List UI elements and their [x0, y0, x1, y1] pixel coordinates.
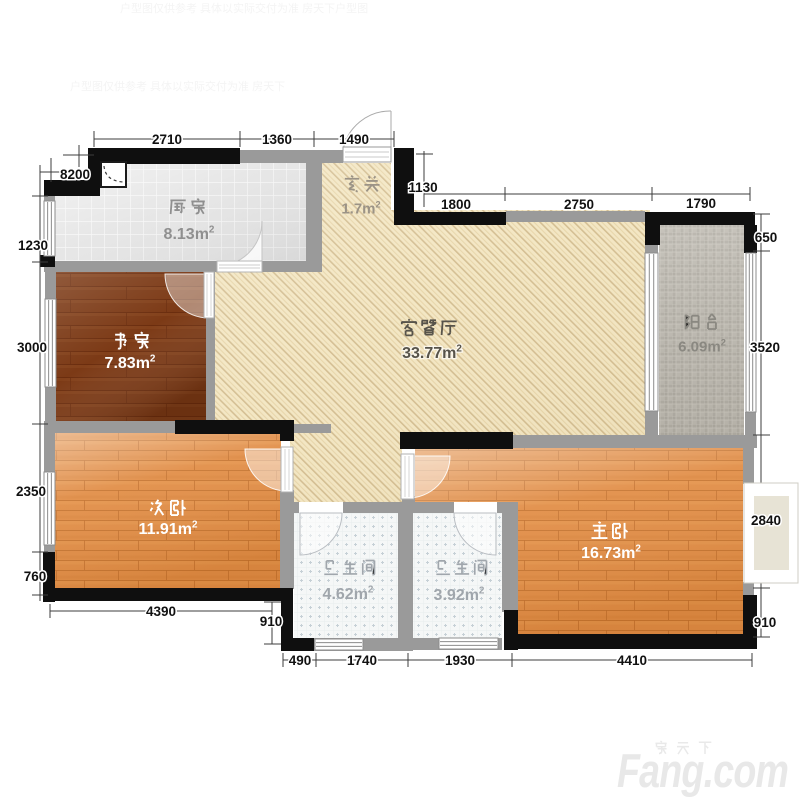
svg-text:1360: 1360: [262, 132, 292, 147]
svg-text:3.92m2: 3.92m2: [434, 586, 485, 604]
svg-text:1930: 1930: [445, 653, 475, 668]
svg-text:650: 650: [755, 230, 778, 245]
svg-text:1230: 1230: [18, 238, 48, 253]
svg-text:33.77m2: 33.77m2: [402, 344, 462, 362]
svg-text:760: 760: [24, 569, 47, 584]
svg-text:16.73m2: 16.73m2: [581, 544, 641, 562]
svg-text:1490: 1490: [339, 132, 369, 147]
svg-text:1790: 1790: [686, 196, 716, 211]
svg-text:2350: 2350: [16, 484, 46, 499]
svg-text:8200: 8200: [60, 167, 90, 182]
svg-text:1130: 1130: [408, 180, 437, 195]
svg-text:2750: 2750: [564, 197, 594, 212]
svg-text:8.13m2: 8.13m2: [164, 225, 215, 243]
svg-text:1.7m2: 1.7m2: [341, 200, 380, 218]
svg-text:户型图仅供参考 具体以实际交付为准 房天下: 户型图仅供参考 具体以实际交付为准 房天下: [70, 79, 285, 93]
svg-text:910: 910: [260, 614, 283, 629]
svg-text:11.91m2: 11.91m2: [139, 520, 198, 538]
svg-text:4390: 4390: [146, 604, 176, 619]
svg-text:3000: 3000: [17, 340, 47, 355]
svg-text:7.83m2: 7.83m2: [105, 354, 156, 372]
svg-text:4410: 4410: [617, 653, 647, 668]
svg-text:1740: 1740: [347, 653, 377, 668]
svg-text:2710: 2710: [152, 132, 182, 147]
svg-text:6.09m2: 6.09m2: [678, 338, 726, 356]
svg-text:Fang.com: Fang.com: [617, 745, 788, 798]
svg-text:490: 490: [289, 653, 312, 668]
svg-text:1800: 1800: [441, 197, 471, 212]
svg-text:4.62m2: 4.62m2: [323, 585, 374, 603]
svg-text:910: 910: [754, 615, 777, 630]
svg-text:2840: 2840: [751, 513, 781, 528]
svg-text:3520: 3520: [750, 340, 780, 355]
svg-text:户型图仅供参考 具体以实际交付为准 房天下户型图: 户型图仅供参考 具体以实际交付为准 房天下户型图: [120, 1, 368, 15]
